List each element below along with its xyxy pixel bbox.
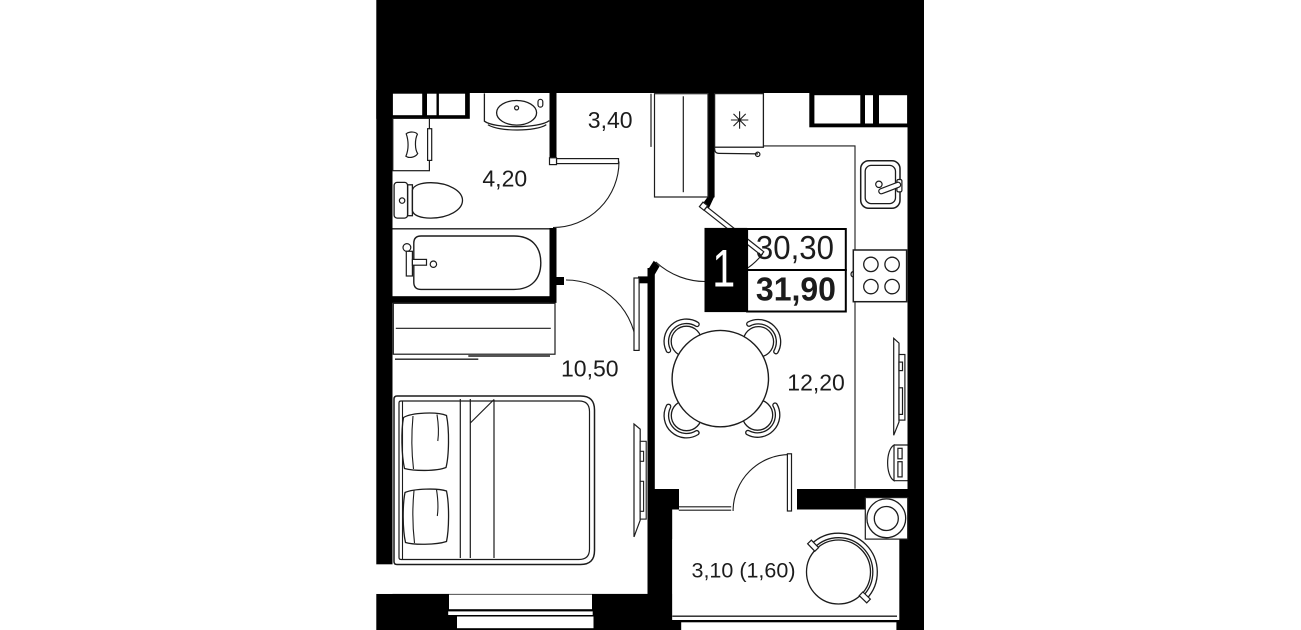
svg-text:10,50: 10,50	[561, 356, 619, 382]
svg-text:4,20: 4,20	[482, 165, 527, 191]
svg-text:12,20: 12,20	[787, 370, 845, 396]
svg-text:3,40: 3,40	[588, 107, 633, 133]
svg-text:30,30: 30,30	[756, 229, 834, 266]
svg-text:31,90: 31,90	[756, 271, 836, 308]
svg-text:3,10 (1,60): 3,10 (1,60)	[692, 559, 796, 583]
svg-text:1: 1	[712, 240, 735, 299]
